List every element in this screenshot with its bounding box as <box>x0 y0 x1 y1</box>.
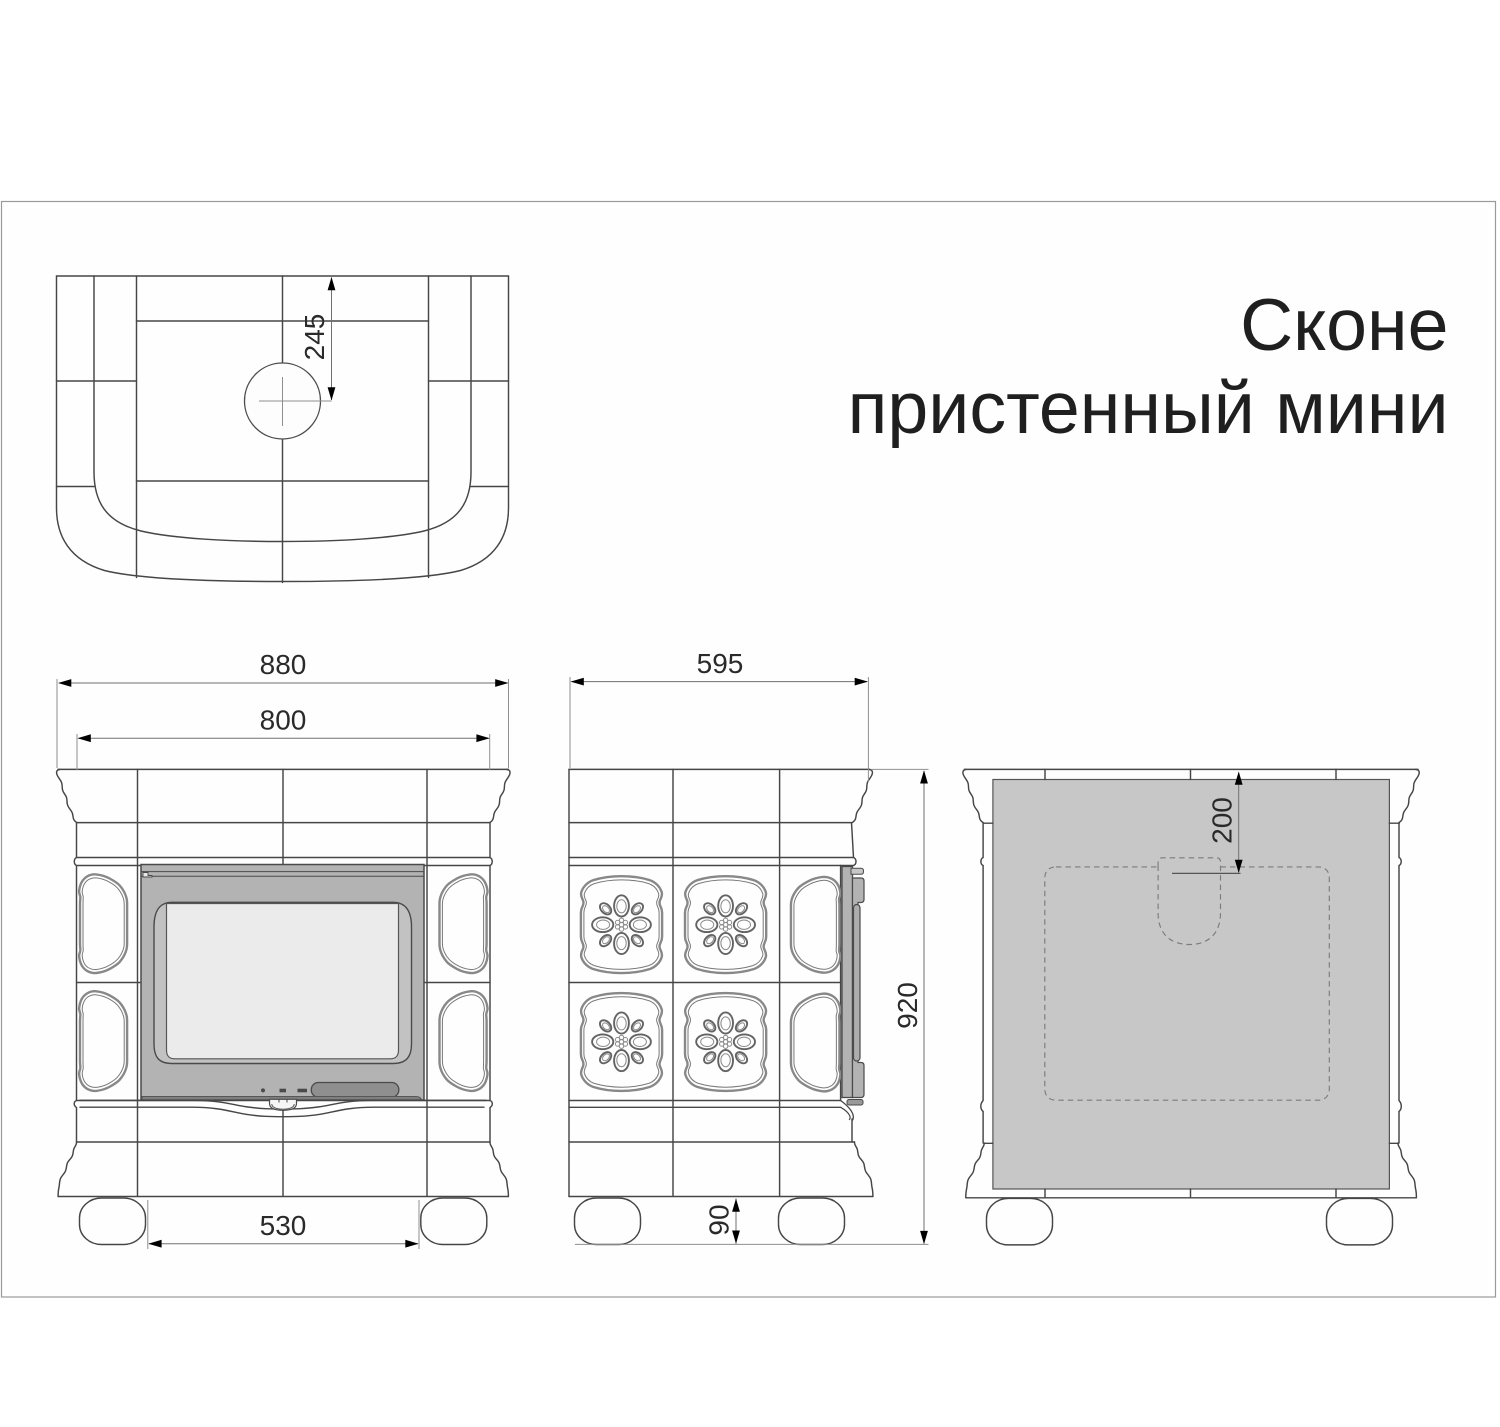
svg-text:800: 800 <box>260 705 307 736</box>
svg-text:пристенный мини: пристенный мини <box>848 366 1449 449</box>
svg-text:Сконе: Сконе <box>1240 283 1448 366</box>
svg-text:530: 530 <box>260 1210 307 1241</box>
svg-text:880: 880 <box>260 649 307 680</box>
svg-text:200: 200 <box>1207 797 1238 844</box>
svg-text:595: 595 <box>697 648 744 679</box>
svg-text:920: 920 <box>892 982 923 1029</box>
svg-text:245: 245 <box>299 314 330 361</box>
svg-text:90: 90 <box>704 1204 735 1235</box>
